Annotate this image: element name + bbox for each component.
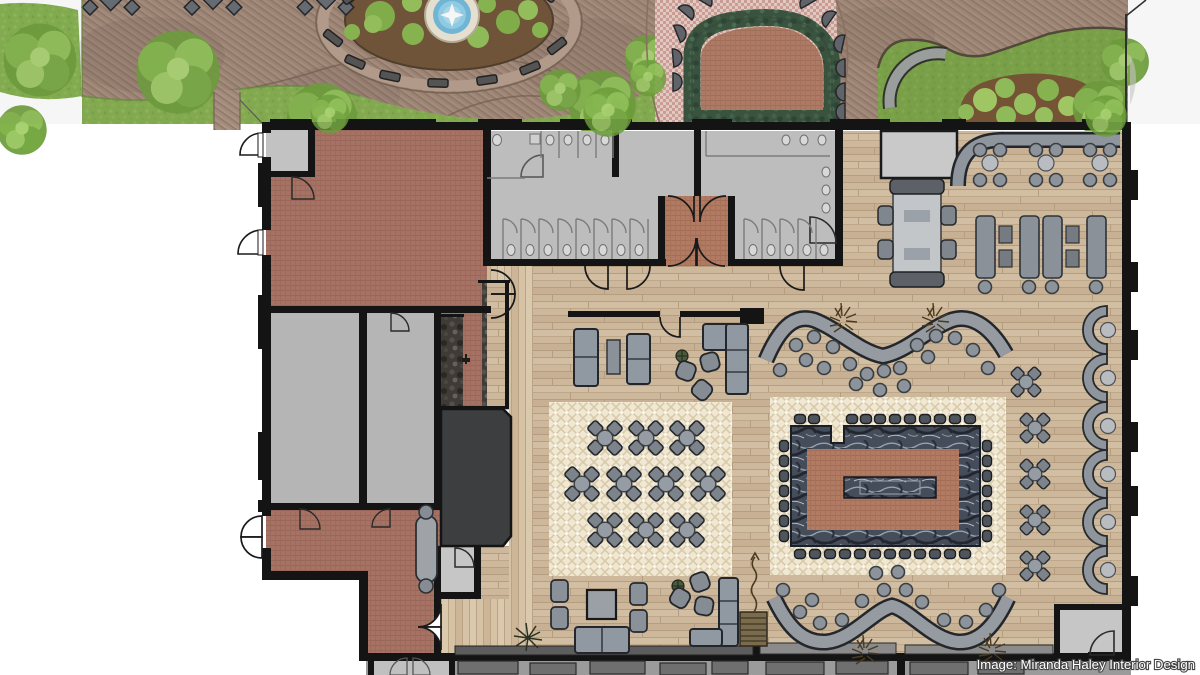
svg-text:Image: Miranda Haley Interior: Image: Miranda Haley Interior Design bbox=[977, 657, 1195, 672]
